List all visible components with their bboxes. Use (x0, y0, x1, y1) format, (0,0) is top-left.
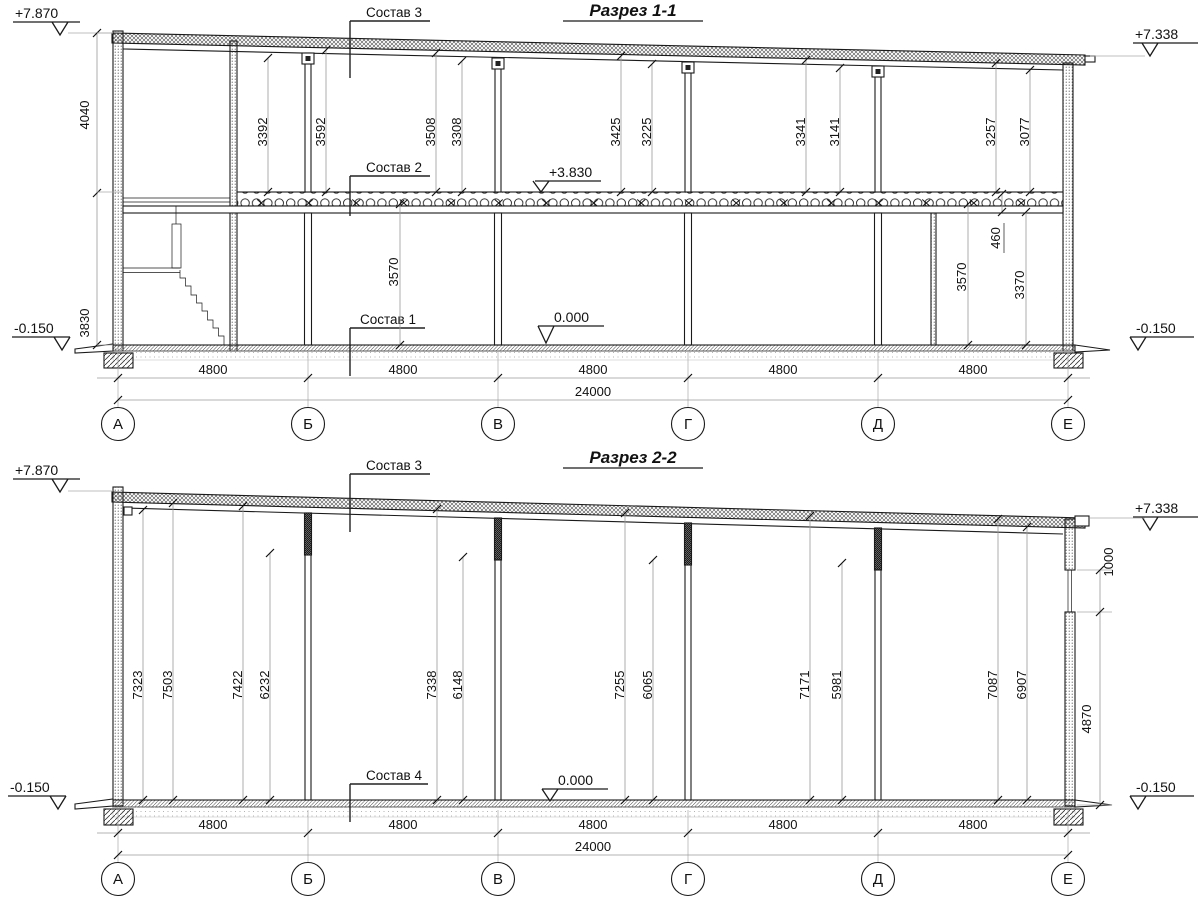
dim-label: 3830 (77, 309, 92, 338)
axis-label: Е (1063, 871, 1073, 888)
svg-text:Состав 3: Состав 3 (366, 5, 422, 20)
elevation-mark-zero-2: 0.000 (542, 772, 608, 801)
wall-axis-e-lower (1065, 612, 1075, 806)
svg-text:-0.150: -0.150 (10, 779, 50, 795)
elevation-mark-bottom-right-2: -0.150 (1130, 779, 1194, 809)
dim-label: 7422 (230, 671, 245, 700)
dim-label: 3570 (386, 258, 401, 287)
dim-label: 4800 (389, 817, 418, 832)
svg-text:Состав 4: Состав 4 (366, 768, 422, 783)
dim-label: 3077 (1017, 118, 1032, 147)
sections-drawing: Разрез 1-1 Состав 3 Состав 2 Состав 1 +7… (0, 0, 1200, 900)
elevation-mark-top-right-2: +7.338 (1090, 500, 1198, 530)
svg-text:+3.830: +3.830 (549, 164, 592, 180)
wall-axis-a-1 (113, 31, 123, 351)
axis-label: Е (1063, 416, 1073, 433)
elevation-mark-bottom-left-1: -0.150 (12, 320, 70, 350)
roof-slab-1 (112, 33, 1095, 70)
total-dim-label: 24000 (575, 384, 611, 399)
staircase (123, 206, 230, 345)
total-dim-label: 24000 (575, 839, 611, 854)
dim-label: 4800 (199, 362, 228, 377)
dim-label: 3425 (608, 118, 623, 147)
elevation-mark-mid-floor: +3.830 (533, 164, 601, 192)
dim-label: 460 (988, 227, 1003, 249)
elevation-mark-top-left: +7.870 (13, 5, 113, 35)
dim-label: 3592 (313, 118, 328, 147)
svg-text:Состав 2: Состав 2 (366, 160, 422, 175)
dim-label: 3308 (449, 118, 464, 147)
dim-label: 4800 (389, 362, 418, 377)
axis-bubbles-1: А Б В Г Д Е (102, 408, 1085, 441)
axis-label: Б (303, 416, 313, 433)
svg-text:Состав 1: Состав 1 (360, 312, 416, 327)
axis-label: Д (873, 871, 883, 888)
svg-text:0.000: 0.000 (558, 772, 593, 788)
dim-label: 4800 (579, 362, 608, 377)
floor-slab-hollow-core (123, 192, 1063, 213)
axis-bubbles-2: А Б В Г Д Е (102, 863, 1085, 896)
elevation-mark-zero-1: 0.000 (538, 309, 604, 343)
dim-label: 4800 (959, 362, 988, 377)
stair-wall (230, 41, 237, 351)
svg-text:-0.150: -0.150 (1136, 779, 1176, 795)
axis-label: Д (873, 416, 883, 433)
dim-label: 4800 (959, 817, 988, 832)
dim-label: 3570 (954, 263, 969, 292)
svg-text:+7.338: +7.338 (1135, 500, 1178, 516)
elevation-mark-bottom-left-2: -0.150 (8, 779, 66, 809)
axis-label: В (493, 416, 503, 433)
bay-dimension-row-2: 4800 4800 4800 4800 4800 24000 (97, 810, 1090, 862)
dim-label: 6907 (1014, 671, 1029, 700)
dim-label: 3257 (983, 118, 998, 147)
elevation-mark-top-right: +7.338 (1090, 26, 1198, 56)
svg-text:+7.870: +7.870 (15, 462, 58, 478)
dim-label: 7255 (612, 671, 627, 700)
hall-columns (305, 513, 882, 800)
dim-label: 7087 (985, 671, 1000, 700)
dim-label: 3141 (827, 118, 842, 147)
svg-text:+7.338: +7.338 (1135, 26, 1178, 42)
axis-label: В (493, 871, 503, 888)
dim-label: 6232 (257, 671, 272, 700)
dim-label: 6065 (640, 671, 655, 700)
dim-label: 7503 (160, 671, 175, 700)
dim-label: 4800 (199, 817, 228, 832)
section-1-1: Разрез 1-1 Состав 3 Состав 2 Состав 1 +7… (12, 1, 1198, 441)
axis-label: Б (303, 871, 313, 888)
wall-axis-e-upper (1065, 519, 1075, 570)
column-height-dims: 7323 7503 7422 6232 7338 6148 7255 6065 … (130, 499, 1031, 804)
dim-label: 4800 (579, 817, 608, 832)
window-opening (1068, 570, 1072, 612)
dim-label: 4870 (1079, 705, 1094, 734)
elevation-mark-bottom-right-1: -0.150 (1130, 320, 1194, 350)
dim-label: 4800 (769, 362, 798, 377)
footing-e-2 (1054, 809, 1083, 825)
axis-label: Г (684, 871, 692, 888)
footing-a-2 (104, 809, 133, 825)
dim-label: 3508 (423, 118, 438, 147)
axis-label: А (113, 871, 123, 888)
footing-a-1 (104, 353, 133, 368)
dim-label: 6148 (450, 671, 465, 700)
wall-axis-a-2 (113, 487, 123, 806)
svg-text:-0.150: -0.150 (14, 320, 54, 336)
dim-label: 4040 (77, 101, 92, 130)
partition-wall (931, 213, 936, 345)
section-2-2: Разрез 2-2 Состав 3 Состав 4 +7.870 +7.3… (8, 448, 1198, 896)
dim-label: 3225 (639, 118, 654, 147)
section-title: Разрез 1-1 (589, 1, 676, 20)
dim-label: 4800 (769, 817, 798, 832)
footing-e-1 (1054, 353, 1083, 368)
dim-label: 1000 (1101, 548, 1116, 577)
dim-label: 5981 (829, 671, 844, 700)
dim-label: 3341 (793, 118, 808, 147)
axis-label: А (113, 416, 123, 433)
svg-text:+7.870: +7.870 (15, 5, 58, 21)
sostav3-label-2: Состав 3 (350, 458, 430, 532)
bay-dimension-row-1: 4800 4800 4800 4800 4800 24000 (97, 352, 1090, 408)
elevation-mark-top-left-2: +7.870 (13, 462, 113, 492)
svg-text:-0.150: -0.150 (1136, 320, 1176, 336)
dim-label: 3370 (1012, 271, 1027, 300)
right-dim-chain: 1000 4870 (1077, 548, 1116, 809)
dim-label: 7338 (424, 671, 439, 700)
dim-label: 7323 (130, 671, 145, 700)
axis-label: Г (684, 416, 692, 433)
roof-slab-2 (112, 492, 1089, 534)
section-title: Разрез 2-2 (589, 448, 677, 467)
dim-label: 7171 (797, 671, 812, 700)
dim-label: 3392 (255, 118, 270, 147)
wall-axis-e-1 (1063, 63, 1073, 351)
svg-text:0.000: 0.000 (554, 309, 589, 325)
drawing-sheet: Разрез 1-1 Состав 3 Состав 2 Состав 1 +7… (0, 0, 1200, 900)
svg-text:Состав 3: Состав 3 (366, 458, 422, 473)
